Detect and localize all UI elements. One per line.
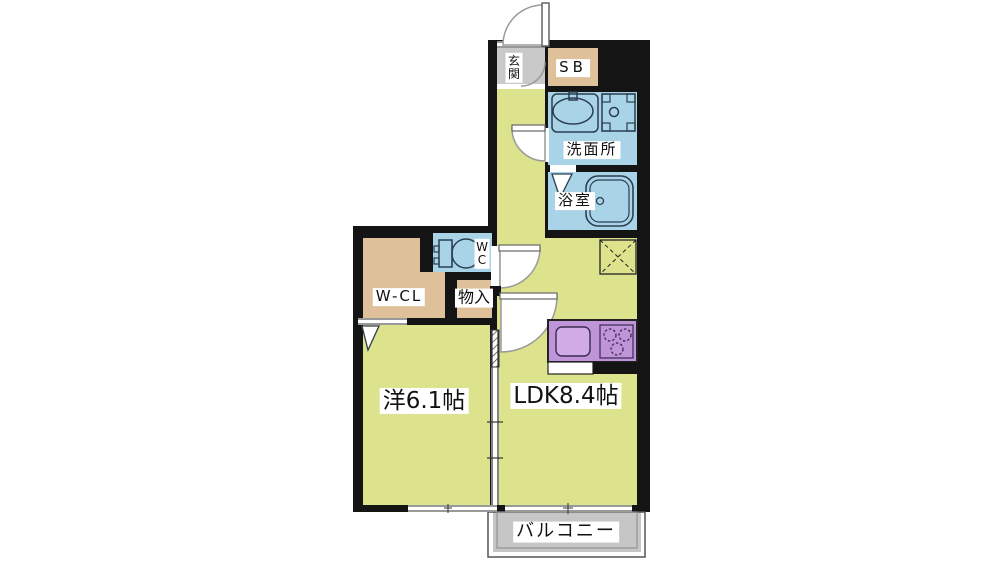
floor-plan-drawing — [0, 0, 1000, 562]
ldk-door-leaf — [500, 293, 557, 299]
label-storage: 物入 — [455, 289, 493, 308]
label-bathroom: 浴室 — [555, 192, 595, 210]
label-entrance: 玄関 — [506, 53, 523, 83]
sliding-door-pocket — [491, 330, 499, 367]
label-shoe-box: SB — [556, 59, 590, 77]
wc-door-opening — [491, 246, 499, 286]
room-hallway — [497, 89, 545, 238]
kitchen-sink-icon — [556, 327, 590, 356]
entrance-door-leaf — [542, 3, 549, 46]
label-walk-in-closet: W-CL — [373, 288, 425, 306]
entrance-door-swing-icon — [503, 5, 543, 45]
label-toilet: WC — [475, 239, 490, 269]
wc-door-leaf — [499, 245, 540, 251]
label-balcony: バルコニー — [513, 522, 619, 543]
label-ldk: LDK8.4帖 — [510, 383, 621, 409]
label-washroom: 洗面所 — [563, 141, 620, 159]
kitchen-wall-stub — [593, 362, 637, 374]
kitchen-counter-end — [548, 362, 593, 374]
room-western — [363, 325, 490, 505]
bath-door-opening — [550, 165, 576, 172]
floor-plan-canvas: 玄関 SB 洗面所 浴室 WC W-CL 物入 洋6.1帖 LDK8.4帖 バル… — [0, 0, 1000, 562]
washroom-door-leaf — [512, 125, 545, 131]
label-western-room: 洋6.1帖 — [380, 388, 469, 414]
